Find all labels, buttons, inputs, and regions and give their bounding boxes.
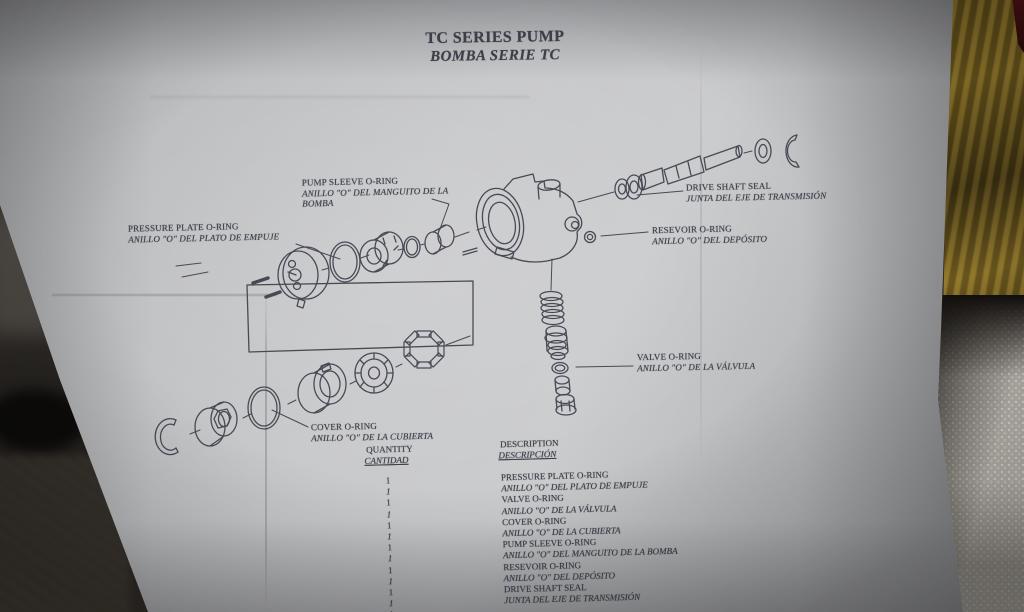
shaft-snap-ring — [786, 135, 799, 167]
shaft-washer — [755, 139, 771, 163]
pressure-plate — [278, 247, 329, 308]
callout-drive-shaft-seal: DRIVE SHAFT SEAL JUNTA DEL EJE DE TRANSM… — [686, 180, 827, 204]
valve-fitting — [555, 376, 576, 415]
row-desc-en: VALVE O-RING — [501, 493, 564, 505]
rotor-assembly — [360, 232, 403, 272]
callout-valve-o-ring: VALVE O-RING ANILLO "O" DE LA VÁLVULA — [637, 350, 756, 374]
valve-spool — [545, 326, 568, 360]
quantity-header-es: CANTIDAD — [364, 455, 408, 466]
row-qty: 1 — [382, 520, 396, 530]
parts-table: QUANTITY CANTIDAD DESCRIPTION DESCRIPCIÓ… — [360, 433, 765, 612]
description-header-en: DESCRIPTION — [500, 438, 559, 450]
photo-scene: TC SERIES PUMP BOMBA SERIE TC — [0, 0, 1024, 612]
cover-o-ring-part — [248, 387, 280, 429]
row-qty: 1 — [382, 531, 396, 541]
quantity-header-en: QUANTITY — [366, 444, 413, 455]
callout-pressure-plate-o-ring: PRESSURE PLATE O-RING ANILLO "O" DEL PLA… — [128, 220, 280, 244]
valve-o-ring-part — [552, 363, 568, 374]
row-qty: 1 — [383, 542, 397, 552]
cam-ring — [298, 363, 346, 413]
row-qty: 1 — [381, 497, 395, 507]
row-qty: 1 — [382, 509, 396, 519]
row-qty: 1 — [383, 565, 397, 575]
pump-rotor — [355, 353, 393, 393]
dowel-pins — [253, 278, 280, 297]
row-qty: 1 — [384, 587, 398, 597]
row-qty: 1 — [383, 576, 397, 586]
row-qty: 1 — [381, 486, 395, 496]
callout-resevoir-o-ring: RESEVOIR O-RING ANILLO "O" DEL DEPÓSITO — [652, 223, 767, 247]
vanes — [404, 331, 444, 368]
paper-sheet: TC SERIES PUMP BOMBA SERIE TC — [0, 0, 1024, 612]
end-cover — [195, 402, 237, 446]
sleeve-o-ring-part — [404, 237, 420, 258]
valve-spring — [540, 292, 564, 325]
row-qty: 1 — [381, 475, 395, 485]
callout-pump-sleeve-o-ring: PUMP SLEEVE O-RING ANILLO "O" DEL MANGUI… — [302, 174, 455, 209]
callout-label-es: ANILLO "O" DEL MANGUITO DE LA BOMBA — [302, 185, 454, 209]
row-qty: 1 — [384, 598, 398, 608]
reservoir-o-ring-part — [585, 232, 596, 243]
callout-cover-o-ring: COVER O-RING ANILLO "O" DE LA CUBIERTA — [311, 420, 433, 444]
pressure-plate-o-ring-part — [330, 242, 360, 282]
cover-snap-ring — [155, 419, 178, 455]
pump-sleeve-part — [425, 225, 454, 254]
row-desc-en: COVER O-RING — [502, 515, 566, 527]
description-header-es: DESCRIPCIÓN — [498, 449, 556, 461]
row-qty: 1 — [383, 553, 397, 563]
row-desc-en: RESEVOIR O-RING — [503, 560, 581, 572]
row-desc-en: DRIVE SHAFT SEAL — [504, 582, 587, 594]
